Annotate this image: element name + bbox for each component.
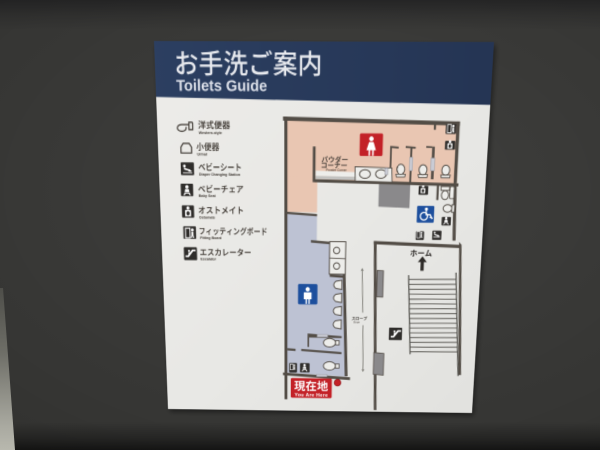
svg-text:Escalator: Escalator <box>201 256 217 261</box>
svg-text:Diaper Changing Station: Diaper Changing Station <box>199 172 241 177</box>
svg-text:Fitting Board: Fitting Board <box>200 235 222 240</box>
svg-text:Ostomate: Ostomate <box>199 215 216 220</box>
svg-text:Western-style: Western-style <box>199 130 223 135</box>
svg-text:Toilets Guide: Toilets Guide <box>176 78 267 96</box>
svg-text:You Are Here: You Are Here <box>295 393 328 399</box>
svg-text:Baby Seat: Baby Seat <box>199 193 217 198</box>
svg-text:Urinal: Urinal <box>197 152 207 157</box>
svg-text:Slope: Slope <box>353 320 360 324</box>
